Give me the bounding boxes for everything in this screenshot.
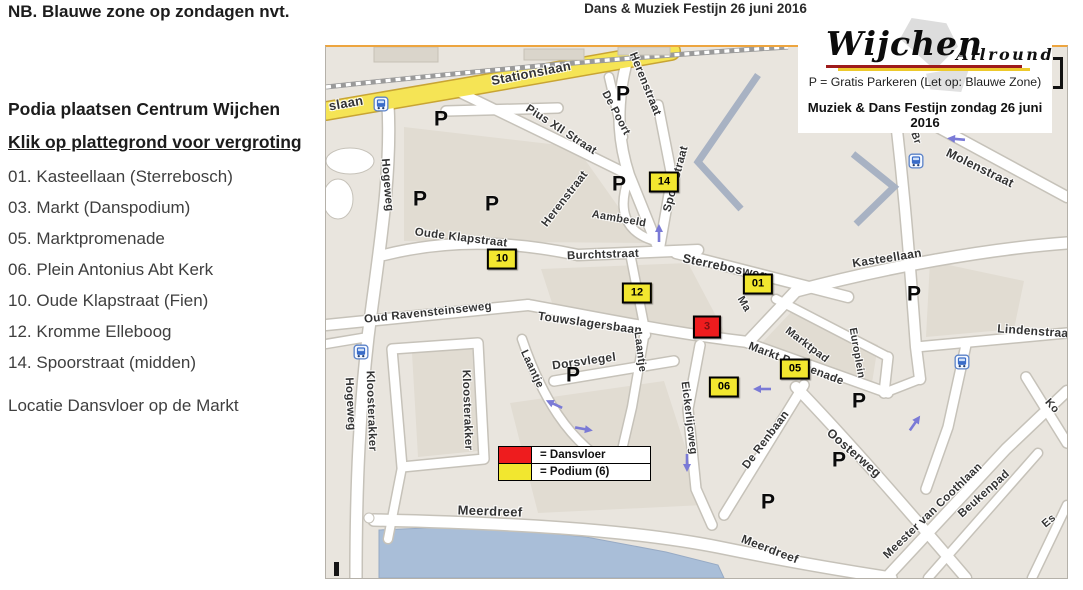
podium-list-item: 01. Kasteellaan (Sterrebosch) [8, 161, 233, 192]
street-label-pius-xii-straat: Pius XII Straat [523, 103, 598, 158]
legend-swatch-dansvloer [499, 447, 532, 463]
street-label-herenstraat: Herenstraat [627, 51, 663, 118]
map-bracket-shape [1053, 57, 1063, 89]
one-way-arrow-icon [573, 422, 594, 435]
bus-stop-icon [955, 355, 970, 370]
legend-row: = Podium (6) [498, 463, 651, 481]
bus-stop-icon [909, 154, 924, 169]
parking-icon: P [852, 391, 866, 412]
bus-stop-icon [374, 97, 389, 112]
map-legend: = Dansvloer= Podium (6) [498, 446, 651, 481]
street-label-meerdreef: Meerdreef [739, 532, 800, 567]
street-label-stationslaan: Stationslaan [490, 58, 572, 88]
logo-underline-yellow [838, 68, 1030, 71]
street-label-dorsvlegel: Dorsvlegel [551, 350, 617, 373]
street-label-es: Es [1040, 512, 1058, 530]
street-label-oude-klapstraat: Oude Klapstraat [414, 226, 508, 249]
legend-label: = Podium (6) [532, 464, 609, 480]
one-way-arrow-icon [654, 223, 664, 243]
one-way-arrow-icon [946, 133, 967, 145]
one-way-arrow-icon [543, 395, 565, 413]
marker-12: 12 [622, 283, 652, 304]
street-label-europlein: Europlein [847, 327, 868, 379]
street-label-de-renbaan: De Renbaan [740, 409, 791, 472]
parking-icon: P [832, 450, 846, 471]
podium-location-list: 01. Kasteellaan (Sterrebosch)03. Markt (… [8, 161, 233, 378]
street-label-laantje: Laantje [518, 348, 546, 390]
street-label-hogeweg: Hogeweg [343, 377, 358, 431]
parking-icon: P [761, 492, 775, 513]
podium-list-item: 03. Markt (Danspodium) [8, 192, 233, 223]
one-way-arrow-icon [752, 384, 772, 394]
legend-row: = Dansvloer [498, 446, 651, 464]
street-label-herenstraat: Herenstraat [540, 169, 591, 229]
parking-icon: P [616, 84, 630, 105]
map-title: Dans & Muziek Festijn 26 juni 2016 [325, 1, 1066, 16]
marker-10: 10 [487, 249, 517, 270]
podium-list-item: 14. Spoorstraat (midden) [8, 347, 233, 378]
street-label-touwslagersbaan: Touwslagersbaan [537, 309, 643, 337]
sidebar: Podia plaatsen Centrum Wijchen Klik op p… [8, 99, 320, 429]
one-way-arrow-icon [682, 453, 692, 473]
dansvloer-note: Locatie Dansvloer op de Markt [8, 396, 239, 416]
marker-01: 01 [743, 274, 773, 295]
street-label-slaan: slaan [328, 93, 365, 114]
parking-note: P = Gratis Parkeren (Let op: Blauwe Zone… [798, 75, 1052, 89]
street-label-ma: Ma [735, 294, 753, 314]
street-label-kasteellaan: Kasteellaan [851, 246, 922, 271]
note-blauwe-zone: NB. Blauwe zone op zondagen nvt. [8, 2, 289, 22]
street-label-lindenstraat: Lindenstraat [997, 321, 1068, 340]
enlarge-map-link[interactable]: Klik op plattegrond voor vergroting [8, 132, 302, 153]
street-label-eickerlijcweg: Eickerlijcweg [679, 381, 700, 456]
street-label-molenstraat: Molenstraat [944, 146, 1016, 191]
parking-icon: P [907, 284, 921, 305]
page: NB. Blauwe zone op zondagen nvt. Dans & … [0, 0, 1083, 590]
podium-list-item: 10. Oude Klapstraat (Fien) [8, 285, 233, 316]
legend-label: = Dansvloer [532, 447, 606, 463]
parking-icon: P [485, 194, 499, 215]
street-label-aambeeld: Aambeeld [591, 208, 647, 229]
street-label-meerdreef: Meerdreef [457, 502, 522, 519]
logo-text-allround: Allround [956, 45, 1054, 64]
marker-06: 06 [709, 377, 739, 398]
bus-stop-icon [354, 345, 369, 360]
podium-list-item: 06. Plein Antonius Abt Kerk [8, 254, 233, 285]
one-way-arrow-icon [905, 412, 925, 434]
parking-icon: P [566, 365, 580, 386]
sidebar-heading: Podia plaatsen Centrum Wijchen [8, 99, 280, 120]
event-line: Muziek & Dans Festijn zondag 26 juni 201… [798, 100, 1052, 130]
street-label-laantje: Laantje [632, 331, 649, 373]
parking-icon: P [612, 174, 626, 195]
podium-list-item: 05. Marktpromenade [8, 223, 233, 254]
street-label-kloosterakker: Kloosterakker [460, 370, 475, 451]
street-label-oud-ravensteinseweg: Oud Ravensteinseweg [364, 300, 493, 325]
parking-icon: P [434, 109, 448, 130]
street-label-ko: Ko [1042, 396, 1061, 415]
marker-05: 05 [780, 359, 810, 380]
marker-14: 14 [649, 172, 679, 193]
marker-3: 3 [693, 316, 721, 339]
logo-overlay: Wijchen Allround P = Gratis Parkeren (Le… [798, 18, 1052, 133]
podium-list-item: 12. Kromme Elleboog [8, 316, 233, 347]
street-label-burchtstraat: Burchtstraat [567, 248, 639, 263]
street-label-kloosterakker: Kloosterakker [364, 371, 379, 452]
street-label-hogeweg: Hogeweg [379, 158, 396, 212]
legend-swatch-podium [499, 464, 532, 480]
parking-icon: P [413, 189, 427, 210]
